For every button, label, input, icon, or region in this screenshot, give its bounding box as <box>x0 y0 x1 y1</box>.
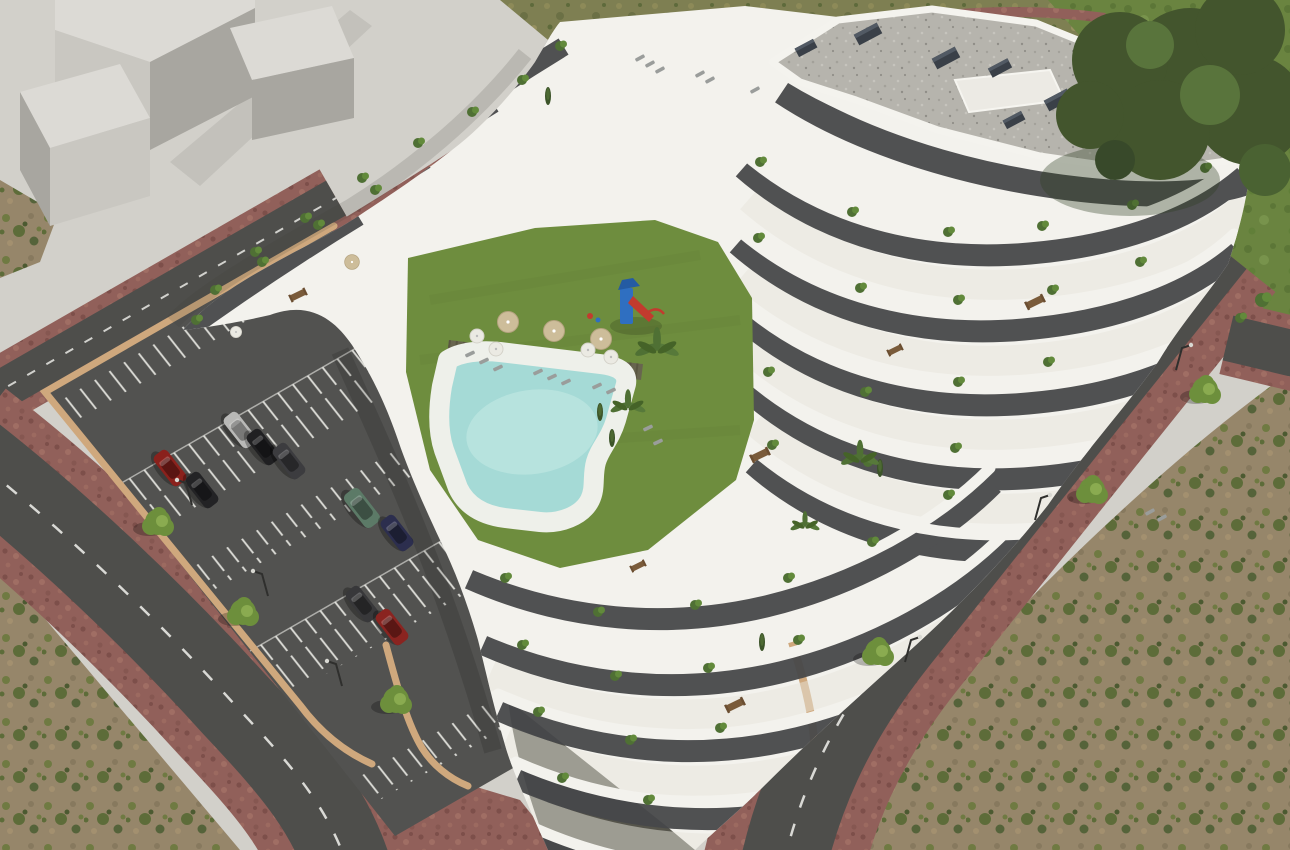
aerial-render <box>0 0 1290 850</box>
umbrella <box>544 321 565 342</box>
branch-road <box>1228 338 1290 360</box>
umbrella <box>498 312 519 333</box>
scene-canvas <box>0 0 1290 850</box>
playground-tower <box>620 288 633 324</box>
